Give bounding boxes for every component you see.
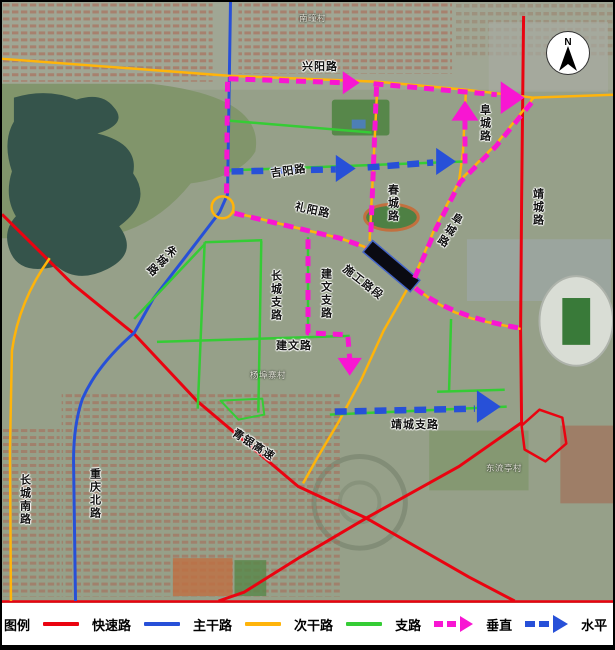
changcheng-south-label: 长城南路 bbox=[18, 474, 30, 526]
dongliuting-village-label: 东流亭村 bbox=[486, 464, 522, 473]
arrowhead-h-arrow-jingcheng-branch bbox=[477, 390, 501, 423]
legend-item-branch: 支路 bbox=[346, 615, 421, 634]
expressway-line-swatch bbox=[43, 622, 79, 626]
jingcheng-branch-label: 靖城支路 bbox=[391, 420, 439, 432]
bottom-border bbox=[2, 645, 613, 650]
north-compass: N bbox=[545, 30, 591, 76]
branch-label: 支路 bbox=[395, 615, 421, 634]
road-changcheng-south-road bbox=[10, 258, 50, 601]
vertical-label: 垂直 bbox=[486, 615, 512, 634]
arterial-label: 主干路 bbox=[193, 615, 232, 634]
route-v-east-leg bbox=[415, 288, 518, 328]
arrowhead-v-arrow-fucheng-up bbox=[451, 101, 478, 121]
road-grid-west-branch bbox=[198, 242, 205, 408]
route-v-xingyang-2 bbox=[374, 84, 497, 95]
secondary-line-swatch bbox=[245, 622, 281, 626]
legend-item-secondary: 次干路 bbox=[245, 615, 333, 634]
arrowhead-v-arrow-xingyang-end bbox=[501, 81, 525, 114]
jingcheng-road-label: 靖城路 bbox=[531, 188, 543, 227]
arterial-line-swatch bbox=[144, 622, 180, 626]
road-green-top-branch bbox=[229, 121, 372, 133]
arrowhead-v-arrow-xingyang-mid bbox=[343, 71, 360, 94]
horizontal-dashed-arrow-icon bbox=[525, 615, 568, 633]
legend-item-horizontal: 水平 bbox=[525, 615, 607, 634]
yangbuzhai-village-label: 杨埠寨村 bbox=[250, 371, 286, 380]
road-changcheng-branch-road bbox=[258, 241, 261, 412]
road-east-horiz-branch bbox=[437, 390, 505, 392]
nantuan-village-label: 南疃村 bbox=[299, 14, 326, 23]
road-grid-top-branch bbox=[205, 240, 263, 242]
legend-bar: 图例 快速路 主干路 次干路 支路 垂直 水平 bbox=[2, 603, 613, 645]
legend-item-expressway: 快速路 bbox=[43, 615, 131, 634]
satellite-map[interactable]: 兴阳路吉阳路礼阳路春城路阜城路阜城路靖城路施工路段长城支路建文支路建文路靖城支路… bbox=[2, 2, 613, 603]
vertical-dashed-arrow-icon bbox=[434, 616, 473, 632]
xingyang-road-label: 兴阳路 bbox=[302, 62, 338, 74]
jianwen-road-label: 建文路 bbox=[276, 341, 312, 353]
horizontal-label: 水平 bbox=[581, 615, 607, 634]
chuncheng-road-label: 春城路 bbox=[386, 184, 398, 223]
route-v-fucheng-diag-leg bbox=[413, 103, 531, 281]
road-ramp-loop bbox=[522, 410, 567, 462]
map-screenshot: 兴阳路吉阳路礼阳路春城路阜城路阜城路靖城路施工路段长城支路建文支路建文路靖城支路… bbox=[0, 0, 615, 650]
legend-title: 图例 bbox=[4, 615, 30, 634]
changcheng-branch-label: 长城支路 bbox=[269, 270, 281, 322]
arrowhead-h-arrow-jiyang-mid bbox=[336, 155, 356, 182]
road-jianwen-road bbox=[157, 336, 350, 342]
jianwen-branch-label: 建文支路 bbox=[319, 268, 331, 320]
arrowhead-v-arrow-jianwen-down bbox=[338, 358, 362, 376]
arrowhead-h-arrow-jiyang-end bbox=[436, 148, 456, 175]
route-v-liyang-leg bbox=[234, 213, 365, 247]
road-fucheng-road-east bbox=[411, 284, 520, 329]
fucheng-road-label-north: 阜城路 bbox=[478, 104, 490, 143]
chongqing-north-label: 重庆北路 bbox=[88, 468, 100, 520]
expressway-label: 快速路 bbox=[92, 615, 131, 634]
legend-item-arterial: 主干路 bbox=[144, 615, 232, 634]
secondary-label: 次干路 bbox=[294, 615, 333, 634]
road-fucheng-road-diagonal bbox=[411, 98, 533, 284]
branch-line-swatch bbox=[346, 622, 382, 626]
road-east-vert-branch bbox=[449, 319, 451, 391]
legend-item-vertical: 垂直 bbox=[434, 615, 512, 634]
